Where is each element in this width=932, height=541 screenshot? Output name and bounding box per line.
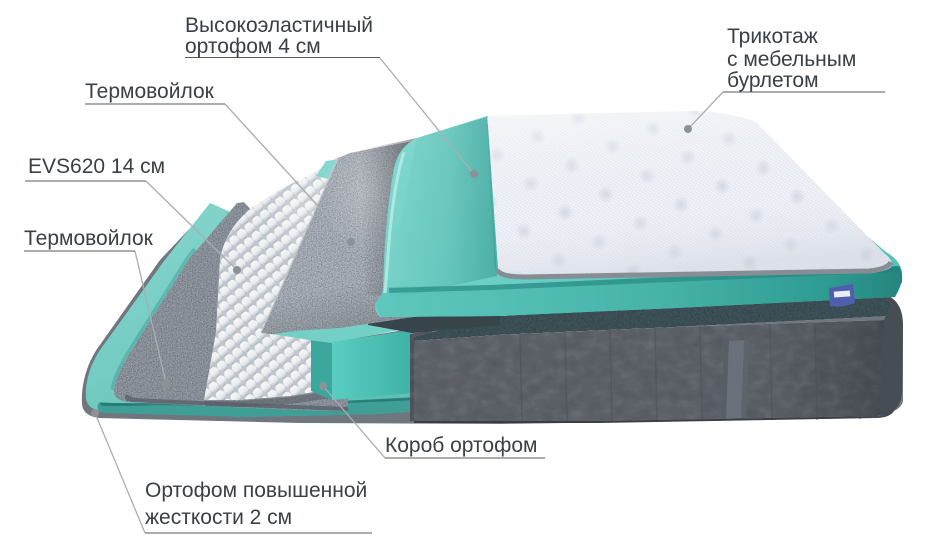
svg-text:ортофом 4 см: ортофом 4 см <box>185 35 321 58</box>
svg-text:Термовойлок: Термовойлок <box>85 80 215 103</box>
svg-text:Ортофом повышенной: Ортофом повышенной <box>145 479 367 502</box>
svg-text:Термовойлок: Термовойлок <box>24 227 154 250</box>
svg-text:бурлетом: бурлетом <box>727 69 819 92</box>
svg-text:Высокоэластичный: Высокоэластичный <box>185 14 373 37</box>
svg-text:EVS620 14 см: EVS620 14 см <box>28 155 165 178</box>
svg-text:с мебельным: с мебельным <box>727 48 856 71</box>
svg-text:Короб ортофом: Короб ортофом <box>385 434 538 457</box>
svg-text:Трикотаж: Трикотаж <box>727 25 818 48</box>
svg-text:жесткости 2 см: жесткости 2 см <box>145 506 292 529</box>
